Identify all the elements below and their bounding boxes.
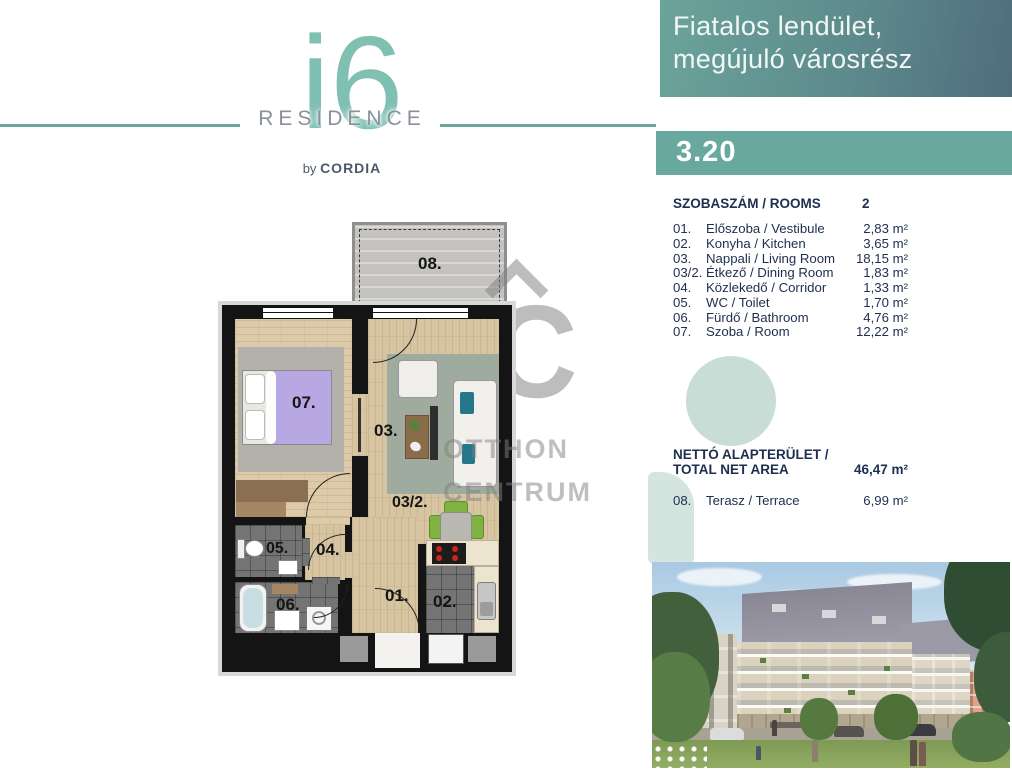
- residence-logo-text: RESIDENCE: [247, 107, 437, 131]
- room-label-corridor: 04.: [316, 540, 340, 560]
- oc-word-otthon: OTTHON: [443, 434, 573, 465]
- tree: [652, 652, 710, 742]
- headline-line2: megújuló városrész: [673, 43, 1012, 76]
- header-rule-left: [0, 124, 240, 127]
- wardrobe-icon: [236, 480, 308, 502]
- armchair-icon: [398, 360, 438, 398]
- hall-door-opening: [345, 552, 358, 578]
- table-row: 01.Előszoba / Vestibule2,83 m²: [673, 222, 908, 237]
- bush: [952, 712, 1010, 762]
- burner: [436, 555, 442, 561]
- room-label-dining: 03/2.: [392, 494, 428, 512]
- sofa-cushion: [460, 392, 474, 414]
- roof-dormer: [822, 610, 836, 618]
- shaft-block: [468, 636, 496, 662]
- sliding-door-panel: [358, 398, 361, 452]
- bath-shelf: [272, 584, 298, 594]
- oc-word-centrum: CENTRUM: [443, 477, 573, 508]
- car: [710, 728, 744, 740]
- room-label-terrace: 08.: [418, 254, 442, 274]
- plant-icon: [409, 420, 420, 431]
- pillow-icon: [245, 410, 265, 440]
- header-rule-right: [440, 124, 656, 127]
- room-label-hall: 01.: [385, 586, 409, 606]
- person: [910, 740, 917, 766]
- cordia-wordmark: CORDIA: [320, 160, 381, 176]
- shaft-block: [340, 636, 368, 662]
- pillow-icon: [245, 374, 265, 404]
- i6-logo-mark: i6: [272, 8, 432, 158]
- person: [772, 720, 777, 736]
- i6-watermark-stem: [648, 472, 694, 564]
- room-label-kitchen: 02.: [433, 592, 457, 612]
- unit-number-bar: 3.20: [656, 131, 1012, 175]
- bath-door-gap: [312, 577, 340, 584]
- white-flowers: [652, 744, 707, 768]
- table-row: 07.Szoba / Room12,22 m²: [673, 325, 908, 340]
- terrace-row: 08. Terasz / Terrace 6,99 m²: [673, 494, 908, 509]
- terrace-door-window: [373, 307, 468, 319]
- table-row: 04.Közlekedő / Corridor1,33 m²: [673, 281, 908, 296]
- table-row: 05.WC / Toilet1,70 m²: [673, 296, 908, 311]
- tree: [800, 698, 838, 740]
- rooms-table: 01.Előszoba / Vestibule2,83 m² 02.Konyha…: [673, 222, 908, 340]
- floor-plan-datasheet: Fiatalos lendület, megújuló városrész 3.…: [0, 0, 1012, 772]
- roof-dormer: [772, 604, 786, 612]
- table-row: 03/2.Étkező / Dining Room1,83 m²: [673, 266, 908, 281]
- table-row: 06.Fürdő / Bathroom4,76 m²: [673, 311, 908, 326]
- entry-door-gap: [375, 633, 420, 668]
- balcony-plant: [848, 690, 855, 695]
- tree: [874, 694, 918, 740]
- person: [756, 746, 761, 760]
- person: [812, 740, 818, 762]
- car: [834, 726, 864, 737]
- roof-dormer: [872, 616, 886, 624]
- cloud: [677, 568, 762, 586]
- room-label-wc: 05.: [266, 540, 288, 558]
- burner: [452, 546, 458, 552]
- bedroom-door-gap: [306, 517, 350, 525]
- balcony-plant: [802, 674, 809, 679]
- fridge-icon: [428, 634, 464, 664]
- rooms-header-value: 2: [862, 196, 870, 211]
- wc-sink-icon: [278, 560, 298, 575]
- bedroom-window: [263, 307, 333, 319]
- room-label-living: 03.: [374, 421, 398, 441]
- room-label-bathroom: 06.: [276, 595, 300, 615]
- headline-banner: Fiatalos lendület, megújuló városrész: [660, 0, 1012, 97]
- duvet-fold: [266, 371, 276, 444]
- i6-watermark-dot: [686, 356, 776, 446]
- balcony-plant: [760, 658, 766, 663]
- toilet-icon: [245, 540, 264, 557]
- headline-line1: Fiatalos lendület,: [673, 10, 1012, 43]
- burner: [436, 546, 442, 552]
- tv-icon: [430, 406, 438, 460]
- table-row: 03.Nappali / Living Room18,15 m²: [673, 252, 908, 267]
- dining-chair-icon: [471, 515, 484, 539]
- net-area-value: 46,47 m²: [673, 462, 908, 477]
- burner: [452, 555, 458, 561]
- toilet-tank: [237, 539, 245, 559]
- unit-number: 3.20: [676, 136, 736, 169]
- wardrobe-icon: [236, 502, 286, 517]
- sink-basin: [480, 602, 493, 616]
- room-label-bedroom: 07.: [292, 393, 316, 413]
- building-rendering-photo: [652, 562, 1010, 768]
- bathtub-water: [243, 588, 263, 628]
- table-row: 02.Konyha / Kitchen3,65 m²: [673, 237, 908, 252]
- person: [919, 742, 926, 766]
- balcony-plant: [884, 666, 890, 671]
- balcony-plant: [784, 708, 791, 713]
- cordia-byline: by CORDIA: [247, 160, 437, 176]
- rooms-header-label: SZOBASZÁM / ROOMS: [673, 196, 821, 211]
